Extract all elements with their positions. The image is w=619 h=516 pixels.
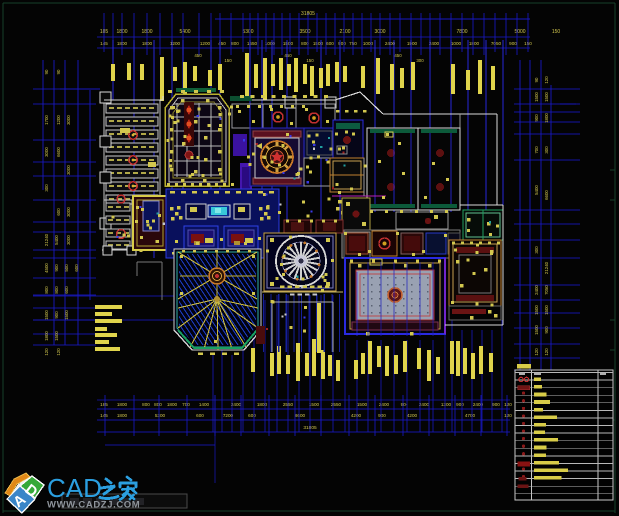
svg-text:1500: 1500 xyxy=(357,402,368,407)
svg-text:600: 600 xyxy=(74,264,79,272)
svg-text:600: 600 xyxy=(326,41,334,46)
svg-text:800: 800 xyxy=(54,286,59,294)
svg-text:WWW.CADZJ.COM: WWW.CADZJ.COM xyxy=(47,500,140,511)
svg-text:4200: 4200 xyxy=(351,413,362,418)
svg-text:CAD: CAD xyxy=(47,473,102,503)
svg-text:1650: 1650 xyxy=(247,41,258,46)
svg-text:120: 120 xyxy=(56,348,61,356)
svg-text:1200: 1200 xyxy=(200,41,211,46)
svg-text:1800: 1800 xyxy=(117,402,128,407)
svg-text:450: 450 xyxy=(218,41,226,46)
svg-text:1000: 1000 xyxy=(451,41,462,46)
svg-text:2100: 2100 xyxy=(339,29,350,35)
svg-text:700: 700 xyxy=(182,402,190,407)
svg-text:2400: 2400 xyxy=(534,285,539,295)
svg-text:1800: 1800 xyxy=(257,402,268,407)
svg-text:145: 145 xyxy=(100,413,108,418)
svg-text:300: 300 xyxy=(534,246,539,254)
svg-text:1800: 1800 xyxy=(544,113,549,123)
svg-text:450: 450 xyxy=(284,53,292,58)
svg-text:900: 900 xyxy=(456,402,464,407)
svg-text:500: 500 xyxy=(64,264,69,272)
svg-text:1500: 1500 xyxy=(283,41,294,46)
svg-text:90: 90 xyxy=(44,69,49,74)
svg-text:3500: 3500 xyxy=(299,29,310,35)
svg-text:1800: 1800 xyxy=(167,402,178,407)
svg-text:1500: 1500 xyxy=(534,92,539,102)
svg-text:120: 120 xyxy=(44,348,49,356)
svg-text:1700: 1700 xyxy=(44,115,49,125)
svg-text:800: 800 xyxy=(154,402,162,407)
svg-text:1800: 1800 xyxy=(44,331,49,341)
svg-text:2400: 2400 xyxy=(379,402,390,407)
svg-text:1800: 1800 xyxy=(469,41,480,46)
svg-text:450: 450 xyxy=(194,53,202,58)
svg-text:1400: 1400 xyxy=(199,402,210,407)
svg-text:185: 185 xyxy=(100,402,108,407)
svg-text:900: 900 xyxy=(338,41,346,46)
svg-text:120: 120 xyxy=(504,413,512,418)
svg-text:1500: 1500 xyxy=(534,305,539,315)
svg-text:5400: 5400 xyxy=(534,185,539,195)
svg-text:1500: 1500 xyxy=(64,310,69,320)
svg-text:5300: 5300 xyxy=(242,29,253,35)
svg-text:450: 450 xyxy=(394,53,402,58)
svg-text:4500: 4500 xyxy=(44,263,49,273)
svg-text:4200: 4200 xyxy=(407,413,418,418)
svg-text:600: 600 xyxy=(64,286,69,294)
svg-text:3000: 3000 xyxy=(66,165,71,175)
svg-text:1500: 1500 xyxy=(544,305,549,315)
svg-text:150: 150 xyxy=(224,58,232,63)
svg-text:800: 800 xyxy=(44,286,49,294)
svg-text:800: 800 xyxy=(142,402,150,407)
svg-text:5000: 5000 xyxy=(514,29,525,35)
svg-text:1200: 1200 xyxy=(56,115,61,125)
svg-text:300: 300 xyxy=(44,184,49,192)
svg-text:300: 300 xyxy=(416,58,424,63)
svg-text:21240: 21240 xyxy=(544,261,549,274)
svg-text:90: 90 xyxy=(56,69,61,74)
svg-text:4700: 4700 xyxy=(465,413,476,418)
svg-text:120: 120 xyxy=(504,402,512,407)
svg-text:1900: 1900 xyxy=(407,41,418,46)
svg-text:1500: 1500 xyxy=(54,331,59,341)
svg-text:6600: 6600 xyxy=(544,190,549,200)
svg-text:900: 900 xyxy=(509,41,517,46)
svg-text:900: 900 xyxy=(54,311,59,319)
svg-text:8600: 8600 xyxy=(295,413,306,418)
svg-text:600: 600 xyxy=(196,413,204,418)
svg-text:700: 700 xyxy=(534,146,539,154)
svg-text:7050: 7050 xyxy=(544,285,549,295)
svg-text:800: 800 xyxy=(231,41,239,46)
svg-text:5400: 5400 xyxy=(54,235,59,245)
svg-text:1000: 1000 xyxy=(363,41,374,46)
svg-text:1500: 1500 xyxy=(313,41,324,46)
svg-text:1300: 1300 xyxy=(441,402,452,407)
svg-text:120: 120 xyxy=(544,76,549,84)
svg-text:3000: 3000 xyxy=(44,147,49,157)
svg-text:150: 150 xyxy=(306,58,314,63)
svg-text:7050: 7050 xyxy=(491,41,502,46)
svg-text:1800: 1800 xyxy=(117,413,128,418)
svg-text:1500: 1500 xyxy=(544,92,549,102)
svg-text:600: 600 xyxy=(56,208,61,216)
svg-text:1200: 1200 xyxy=(170,41,181,46)
svg-text:600: 600 xyxy=(248,413,256,418)
svg-text:150: 150 xyxy=(552,29,561,35)
svg-text:900: 900 xyxy=(544,326,549,334)
svg-text:5400: 5400 xyxy=(179,29,190,35)
svg-text:6600: 6600 xyxy=(56,147,61,157)
svg-text:900: 900 xyxy=(534,114,539,122)
svg-text:900: 900 xyxy=(378,413,386,418)
svg-text:900: 900 xyxy=(54,264,59,272)
svg-text:2550: 2550 xyxy=(331,402,342,407)
svg-text:1500: 1500 xyxy=(534,325,539,335)
svg-text:900: 900 xyxy=(492,402,500,407)
svg-text:120: 120 xyxy=(544,348,549,356)
svg-text:90: 90 xyxy=(534,77,539,82)
svg-text:1500: 1500 xyxy=(44,310,49,320)
svg-text:3000: 3000 xyxy=(66,207,71,217)
svg-text:5300: 5300 xyxy=(155,413,166,418)
svg-text:21240: 21240 xyxy=(44,233,49,246)
svg-text:300: 300 xyxy=(544,146,549,154)
svg-text:3000: 3000 xyxy=(66,235,71,245)
svg-text:120: 120 xyxy=(534,348,539,356)
svg-text:3000: 3000 xyxy=(66,115,71,125)
